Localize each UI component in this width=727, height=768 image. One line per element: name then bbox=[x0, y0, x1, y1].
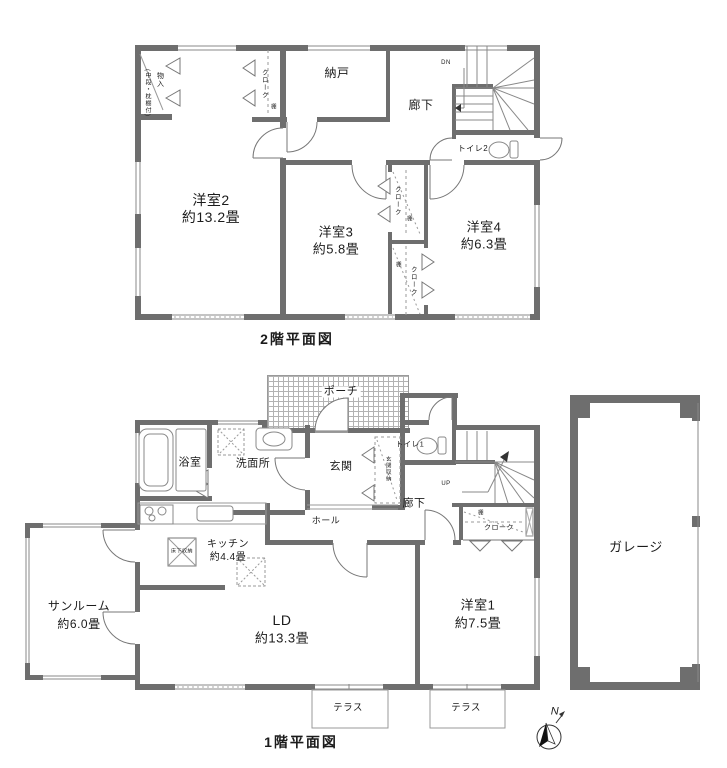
shelf-label-2f-a: 棚 bbox=[407, 217, 413, 223]
room-label-toilet1: トイレ1 bbox=[396, 440, 425, 448]
storage-label-yukashita: 床下収納 bbox=[171, 550, 193, 555]
terrace2-label: テラス bbox=[451, 703, 481, 713]
garage-label: ガレージ bbox=[609, 541, 663, 554]
room-label-rouka-2f-real: 廊下 bbox=[408, 99, 433, 111]
folding-door-triangles bbox=[166, 58, 434, 298]
room-label-yoshitsu4: 洋室4 bbox=[467, 221, 502, 234]
closet-label-2f-a: クローク bbox=[393, 186, 400, 216]
closet-label-monoire: 物入 bbox=[157, 72, 164, 88]
room-size-yoshitsu4: 約6.3畳 bbox=[461, 238, 508, 251]
room-label-toilet2: トイレ2 bbox=[458, 145, 488, 153]
room-label-ld: LD bbox=[273, 613, 292, 627]
room-label-porch: ポーチ bbox=[322, 387, 361, 398]
room-size-yoshitsu1: 約7.5畳 bbox=[455, 617, 502, 630]
room-size-ld: 約13.3畳 bbox=[255, 632, 309, 645]
stairs-dn-label: DN bbox=[441, 60, 451, 66]
shelf-label-1f: 棚 bbox=[478, 511, 484, 517]
room-size-yoshitsu3: 約5.8畳 bbox=[313, 243, 360, 256]
room-label-sunroom: サンルーム bbox=[48, 600, 110, 612]
room-label-yokushitsu: 浴室 bbox=[179, 458, 202, 469]
closet-label-2f-b: クローク bbox=[409, 266, 416, 296]
stairs-2f bbox=[455, 46, 534, 130]
terrace1-label: テラス bbox=[333, 703, 363, 713]
floorplan-drawing bbox=[0, 0, 727, 768]
room-label-senmenjo: 洗面所 bbox=[236, 459, 271, 470]
shelf-label-2f-b: 棚 bbox=[396, 263, 402, 269]
room-label-hall: ホール bbox=[312, 517, 341, 526]
toilet2-fixture bbox=[489, 141, 518, 158]
floorplan-page: 2階平面図 洋室2 約13.2畳 洋室3 約5.8畳 洋室4 約6.3畳 納戸 … bbox=[0, 0, 727, 768]
room-label-yoshitsu1: 洋室1 bbox=[461, 599, 496, 612]
compass-north-label: N bbox=[551, 707, 559, 718]
room-label-kitchen: キッチン bbox=[207, 540, 249, 550]
closet-note-monoire: (中段・枕棚付) bbox=[144, 69, 150, 117]
room-label-yoshitsu3: 洋室3 bbox=[319, 226, 354, 239]
room-size-kitchen: 約4.4畳 bbox=[210, 553, 246, 563]
floor2-title: 2階平面図 bbox=[260, 332, 334, 346]
room-size-sunroom: 約6.0畳 bbox=[57, 618, 100, 630]
closet-label-genkan-shuno: 玄関収納 bbox=[384, 456, 390, 482]
floor1-title: 1階平面図 bbox=[264, 735, 338, 749]
stairs-up-label: UP bbox=[441, 481, 450, 487]
floor2-walls bbox=[135, 45, 540, 320]
closet-label-1f: クローク bbox=[484, 525, 514, 532]
room-size-yoshitsu2: 約13.2畳 bbox=[182, 210, 240, 224]
room-label-yoshitsu2: 洋室2 bbox=[192, 193, 229, 207]
room-label-nando: 納戸 bbox=[324, 67, 349, 79]
closet-label-2f-top: クローク bbox=[260, 69, 267, 99]
stairs-1f bbox=[455, 431, 534, 503]
shelf-label-2f-top: 棚 bbox=[271, 105, 277, 111]
room-label-genkan: 玄関 bbox=[330, 462, 353, 473]
room-label-rouka-1f: 廊下 bbox=[403, 499, 426, 510]
